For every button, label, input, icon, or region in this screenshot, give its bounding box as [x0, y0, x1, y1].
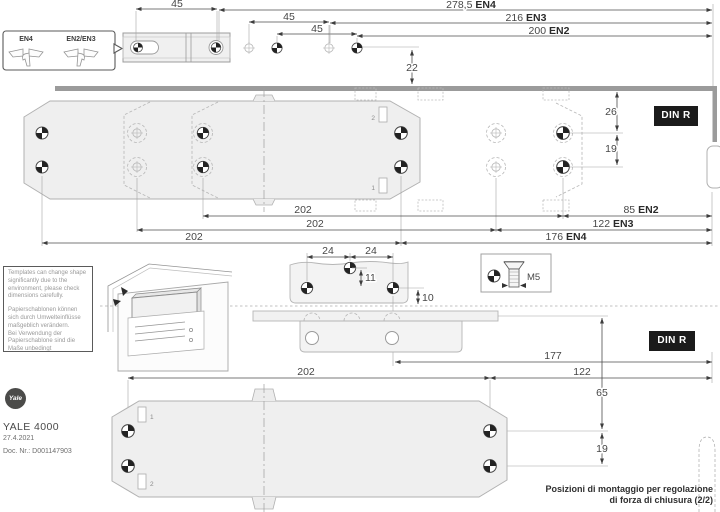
- dim-202-c: 202: [185, 231, 203, 243]
- note-de-2: Bei Verwendung der Papierschablone sind …: [8, 331, 88, 352]
- alt-hole-mark: [490, 161, 502, 173]
- rail-hole: [306, 332, 319, 345]
- din-r-badge-bottom: DIN R: [649, 331, 695, 351]
- din-r-badge-top: DIN R: [654, 106, 698, 126]
- dim-24-a: 24: [322, 245, 334, 257]
- screw-shank-icon: [509, 269, 519, 287]
- screw-size-label: M5: [527, 272, 540, 283]
- screw-hole-mark: [484, 460, 497, 473]
- door-mounting-illustration: [108, 264, 232, 371]
- dim-202-a: 202: [294, 204, 312, 216]
- document-number: Doc. Nr.: D001147903: [3, 448, 143, 455]
- hole-label-2: 2: [150, 481, 154, 488]
- screw-hole-mark: [211, 43, 221, 53]
- screw-hole-mark: [122, 460, 135, 473]
- dim-22: 22: [406, 62, 418, 74]
- top-right-vertical-dims: 26 19: [570, 92, 623, 167]
- hole-label-1: 1: [371, 185, 375, 192]
- dim-overall-en2: 200EN2: [529, 25, 570, 37]
- dim-19-top: 19: [605, 143, 617, 155]
- template-warning-note: Templates can change shape significantly…: [3, 266, 93, 352]
- screw-hole-mark: [488, 270, 500, 282]
- dim-65: 65: [596, 387, 608, 399]
- screw-hole-mark: [557, 161, 570, 174]
- screw-hole-mark: [387, 282, 398, 293]
- rail-hole: [386, 332, 399, 345]
- screw-hole-mark: [36, 161, 48, 173]
- frame-drill-marks: [243, 42, 362, 54]
- callout-pointer: [114, 44, 122, 53]
- yale-logo: Yale: [5, 388, 26, 409]
- screw-hole-mark: [301, 282, 312, 293]
- product-name: YALE 4000: [3, 421, 133, 433]
- adjustment-callout: EN4 EN2/EN3: [3, 31, 122, 70]
- rail-front-view: [253, 311, 498, 352]
- mounting-template-page: EN4 EN2/EN3 45: [0, 0, 720, 512]
- screw-hole-mark: [395, 127, 408, 140]
- note-en: Templates can change shape significantly…: [8, 270, 88, 301]
- callout-label-en4: EN4: [19, 36, 33, 43]
- dim-202-bottom: 202: [297, 366, 315, 378]
- screw-hole-mark: [36, 127, 48, 139]
- dim-45-c: 45: [311, 23, 323, 35]
- caption-line-1: Posizioni di montaggio per regolazione: [545, 484, 713, 495]
- screw-hole-mark: [484, 425, 497, 438]
- screw-hole-mark: [197, 127, 208, 138]
- alt-hole-mark: [323, 42, 335, 54]
- dim-26: 26: [605, 106, 617, 118]
- dim-202-b: 202: [306, 218, 324, 230]
- dim-24-b: 24: [365, 245, 377, 257]
- screw-hole-mark: [134, 43, 143, 52]
- closer-body-template-top: 2 1: [24, 88, 582, 212]
- screw-hole-mark: [352, 43, 362, 53]
- alt-hole-mark: [490, 127, 502, 139]
- strike-plate-outline: [707, 146, 720, 188]
- dim-overall-en3: 216EN3: [506, 12, 547, 24]
- dim-122-en3: 122EN3: [593, 218, 634, 230]
- dim-19-bottom: 19: [596, 443, 608, 455]
- screw-legend: M5: [481, 254, 551, 292]
- dim-85-en2: 85EN2: [623, 204, 658, 216]
- caption-line-2: di forza di chiusura (2/2): [545, 495, 713, 506]
- screw-hole-mark: [272, 43, 282, 53]
- document-date: 27.4.2021: [3, 435, 133, 442]
- closer-body-template-bottom: 1 2: [112, 384, 507, 512]
- note-de-1: Papierschablonen können sich durch Umwel…: [8, 307, 88, 330]
- alt-hole-mark: [243, 42, 255, 54]
- dim-10: 10: [422, 292, 434, 304]
- callout-label-en2-en3: EN2/EN3: [66, 36, 95, 43]
- hole-label-1: 1: [150, 414, 154, 421]
- dim-176-en4: 176EN4: [546, 231, 587, 243]
- arm-bracket-template: [123, 33, 230, 62]
- dim-11: 11: [365, 272, 376, 284]
- page-caption: Posizioni di montaggio per regolazione d…: [545, 484, 713, 507]
- dim-177: 177: [544, 350, 562, 362]
- dim-overall-en4: 278,5EN4: [446, 0, 496, 11]
- hole-label-2: 2: [371, 115, 375, 122]
- screw-hole-mark: [557, 127, 570, 140]
- dim-45-b: 45: [283, 11, 295, 23]
- screw-hole-mark: [197, 161, 208, 172]
- dim-45-arm: 45: [171, 0, 183, 10]
- screw-hole-mark: [395, 161, 408, 174]
- dim-122-bottom: 122: [573, 366, 591, 378]
